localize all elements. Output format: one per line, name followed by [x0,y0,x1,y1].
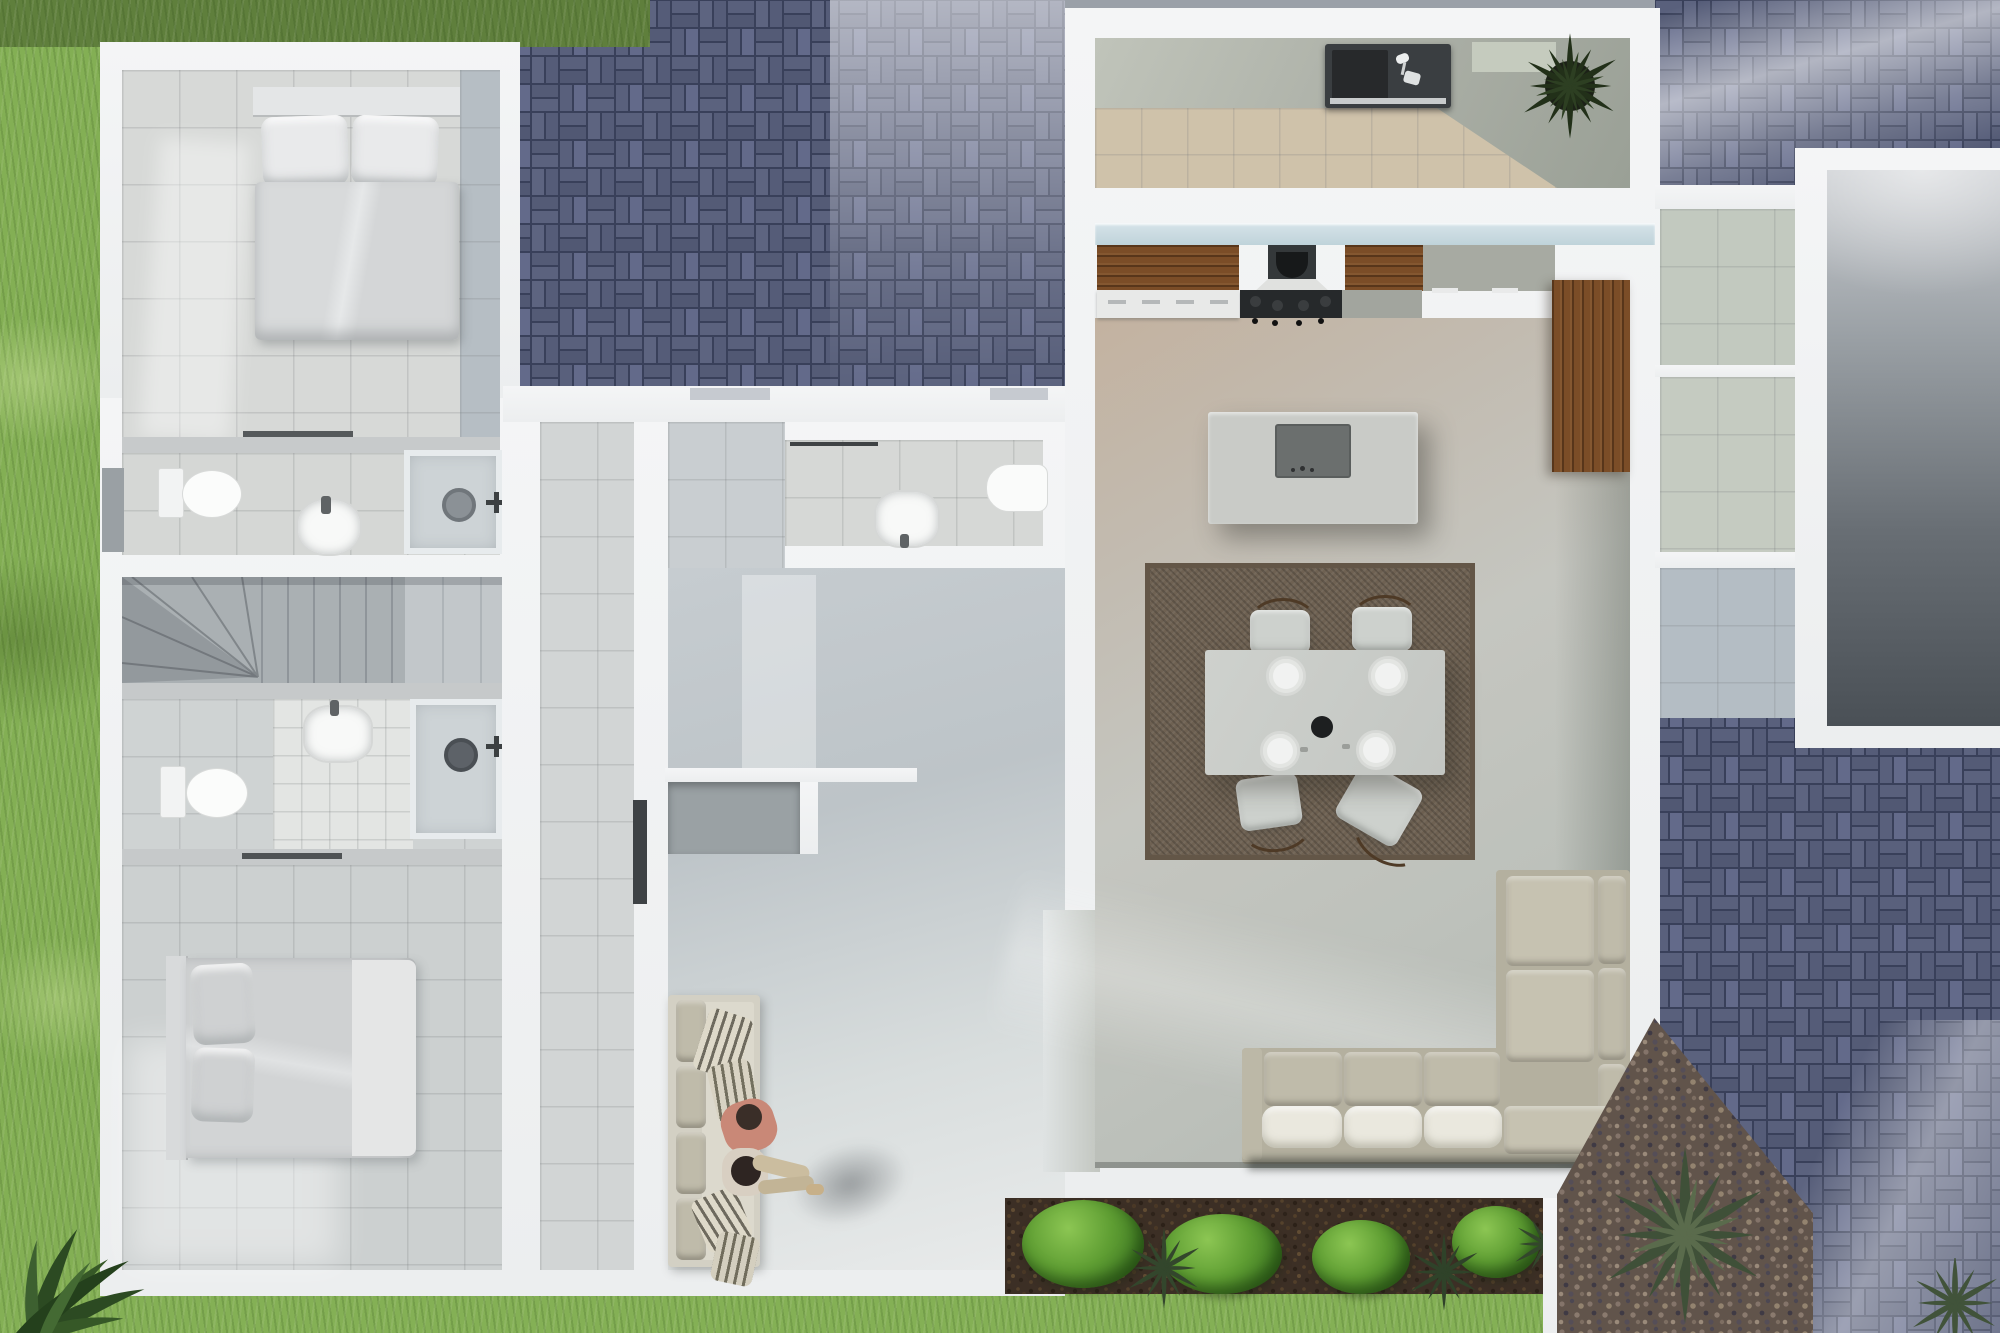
shower-door-handle [494,492,499,513]
sofa-back-cushion [1598,876,1626,964]
sink-bowl-dark [1332,50,1388,102]
drawer-handle [1142,300,1160,304]
drawer-handle [1176,300,1194,304]
agave-plant [1400,1228,1488,1316]
knob-icon [1272,320,1278,326]
door-threshold [690,388,770,400]
sofa-back-cushion [1344,1052,1422,1106]
dark-door-panel [633,800,647,904]
island-faucet-icon [1291,468,1295,472]
bed-pillow [191,1047,256,1123]
hall-living-opening [1043,910,1100,1172]
faucet [330,700,339,716]
drawer-handle [1210,300,1228,304]
toilet-tank [160,766,186,818]
open-door [102,468,124,552]
drawer-handle [1432,288,1458,293]
sofa-seat-white [1424,1106,1502,1148]
agave-plant [1118,1222,1210,1314]
walkway-panel [1660,209,1795,365]
dining-chair [1352,607,1412,651]
walkway-bar [1655,552,1798,568]
shower-door-handle [494,736,499,757]
kitchen-cabinet-wood [1345,245,1423,291]
plate [1266,656,1306,696]
shower-drain-icon [444,738,478,772]
burner-icon [1298,300,1309,311]
sofa-seat-white [1344,1106,1422,1148]
kitchen-counter-white [1097,290,1239,318]
person-head [736,1104,762,1130]
lawn-top [0,0,650,47]
sofa-back-cushion [676,1132,706,1194]
sofa-back-cushion [1424,1052,1500,1106]
person-feet [806,1184,824,1195]
burner-icon [1250,296,1261,307]
knob-icon [1252,318,1258,324]
bed-pillow [261,115,349,188]
island-faucet-icon [1310,468,1314,472]
knob-icon [1318,318,1324,324]
counter-grey-strip [1342,290,1422,318]
walkway-bar [1655,185,1798,209]
bed-headboard [166,956,188,1160]
plate [1356,730,1396,770]
bed-duvet [255,182,459,340]
entry-niche [668,782,800,854]
faucet [321,496,331,514]
bed-sheet-fold [352,960,416,1156]
sofa-back-cushion [676,1066,706,1128]
shelf-dark [242,853,342,859]
kitchen-counter-grey [1423,245,1555,291]
faucet [900,534,909,548]
sofa-seat-cushion [1506,876,1594,966]
burner-icon [1320,296,1331,307]
paving-courtyard [503,0,1065,400]
hall-wall-stub [665,768,917,782]
sofa-back-cushion [1264,1052,1342,1106]
garden-bush [1312,1220,1410,1294]
wall-segment [800,782,818,854]
wall-base-shadow [1095,1162,1630,1168]
bed-pillow [351,115,439,188]
plate [1260,731,1300,771]
plate [1368,656,1408,696]
vanity-shelf [243,431,353,437]
bed-headboard [253,87,460,117]
center-bowl [1311,716,1333,738]
floor-plan-render [0,0,2000,1333]
glass-wall-band [1095,223,1655,245]
palm-plant [0,1215,270,1333]
toilet-bowl [182,470,242,518]
door-threshold [990,388,1048,400]
walkway-panel [1660,568,1795,718]
burner-icon [1272,300,1283,311]
potted-plant [1498,14,1632,156]
toilet-tank [158,468,184,518]
agave-corner [1905,1258,2000,1333]
toilet-bowl [986,464,1048,512]
dining-table [1205,650,1445,775]
knob-icon [1296,320,1302,326]
pool-surface [1827,170,2000,726]
cutlery-icon [1342,744,1350,749]
dining-chair [1250,610,1310,654]
kitchen-cabinet-wood [1097,245,1239,291]
toilet-bowl [186,768,248,818]
dining-chair [1235,772,1304,832]
sofa-seat-cushion [1506,970,1594,1062]
bathroom-2-halfwall [122,683,502,699]
drawer-handle [1492,288,1518,293]
sofa-back-cushion [1598,968,1626,1060]
bedroom-1-wardrobe-strip [460,70,500,438]
bed-pillow [190,962,256,1045]
door-track [790,442,878,446]
sofa-seat-white [1262,1106,1342,1148]
staircase [122,577,502,683]
agave-large [1580,1140,1790,1333]
corridor-floor [540,422,634,1270]
walkway-bar [1655,365,1798,377]
tall-wood-unit [1552,280,1630,472]
shower-drain-icon [442,488,476,522]
counter-edge [1330,98,1446,104]
sectional-armrest [1242,1048,1262,1160]
walkway-panel [1660,377,1795,552]
drawer-handle [1108,300,1126,304]
courtyard-south-wall [503,386,1065,422]
island-faucet-icon [1300,466,1305,471]
cutlery-icon [1300,747,1308,752]
hall-upper-floor [668,422,785,568]
